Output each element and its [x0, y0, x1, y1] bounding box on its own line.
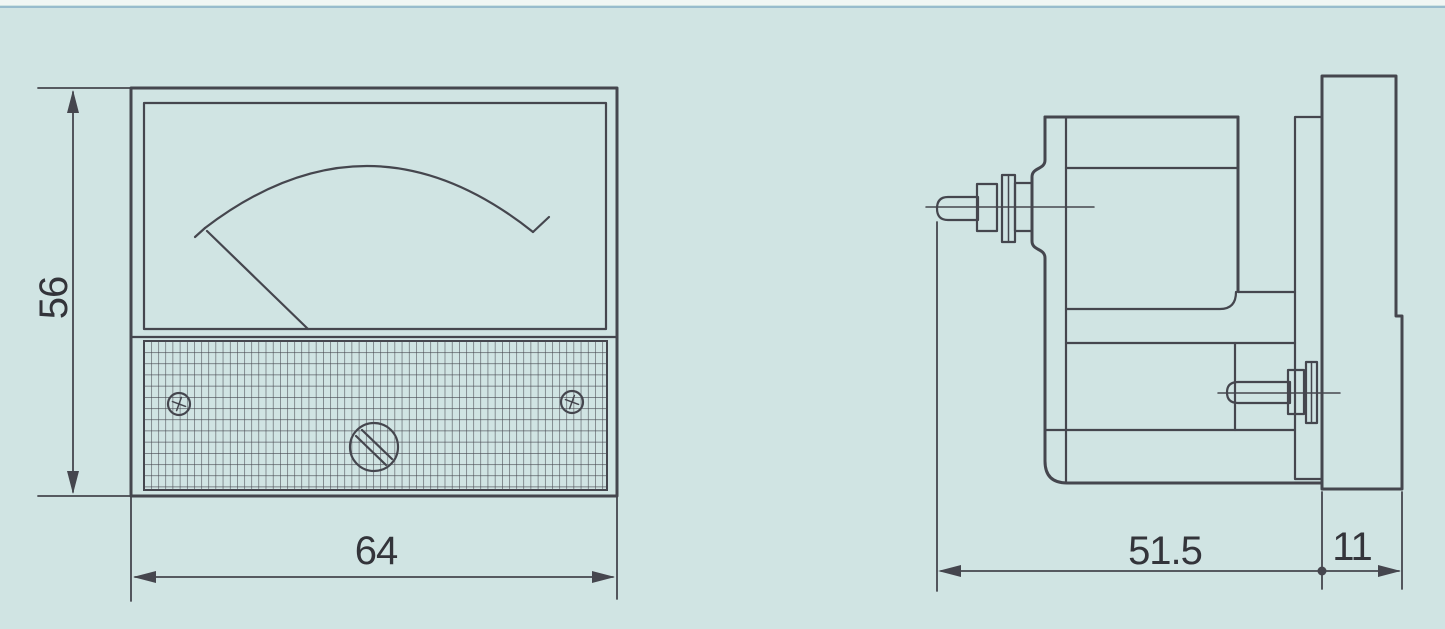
- dimension-label-depth: 51.5: [1128, 529, 1202, 573]
- dimension-label-bezel: 11: [1332, 525, 1372, 569]
- dimension-label-width: 64: [355, 529, 398, 573]
- technical-drawing-page: 56 64: [0, 0, 1445, 629]
- panel-meter-dimension-drawing: 56 64: [0, 0, 1445, 629]
- scan-edge-band: [0, 0, 1445, 5]
- drawing-background: [0, 0, 1445, 629]
- dimension-label-height: 56: [32, 277, 76, 320]
- textured-lower-panel: [144, 341, 607, 490]
